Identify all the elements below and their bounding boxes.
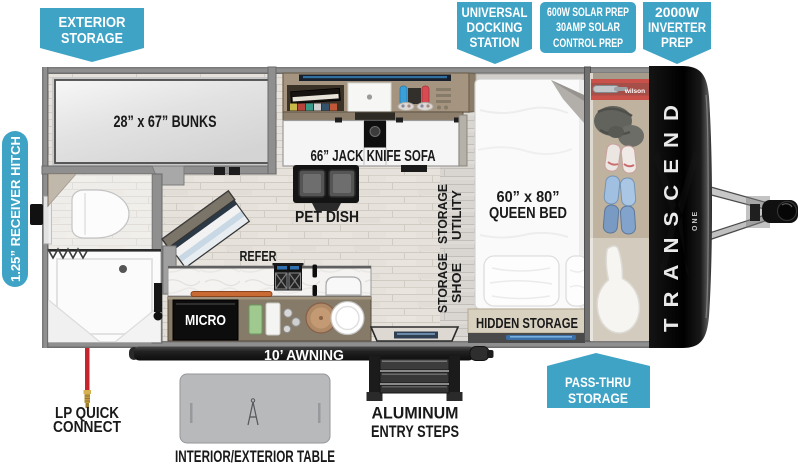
svg-text:PET DISH: PET DISH (295, 209, 359, 226)
svg-text:PASS-THRU: PASS-THRU (565, 374, 631, 390)
svg-text:28” x 67” BUNKS: 28” x 67” BUNKS (114, 112, 217, 131)
svg-text:MICRO: MICRO (185, 312, 226, 329)
svg-text:UNIVERSAL: UNIVERSAL (462, 5, 528, 20)
svg-text:STATION: STATION (470, 35, 520, 50)
svg-text:STORAGE: STORAGE (568, 390, 628, 406)
svg-text:PREP: PREP (661, 35, 693, 50)
svg-text:CONNECT: CONNECT (53, 419, 121, 436)
svg-text:ALUMINUM: ALUMINUM (372, 405, 459, 423)
svg-text:INTERIOR/EXTERIOR TABLE: INTERIOR/EXTERIOR TABLE (175, 448, 335, 465)
svg-text:60” x 80”: 60” x 80” (497, 189, 560, 206)
svg-text:TRANSCEND: TRANSCEND (661, 94, 683, 332)
svg-text:30AMP SOLAR: 30AMP SOLAR (556, 22, 621, 34)
svg-text:HIDDEN STORAGE: HIDDEN STORAGE (476, 316, 578, 332)
svg-text:UTILITY: UTILITY (449, 190, 464, 240)
svg-text:EXTERIOR: EXTERIOR (59, 15, 126, 31)
svg-text:10’ AWNING: 10’ AWNING (264, 347, 344, 364)
svg-text:QUEEN BED: QUEEN BED (489, 205, 567, 222)
svg-text:66” JACK KNIFE SOFA: 66” JACK KNIFE SOFA (311, 148, 436, 165)
svg-text:STORAGE: STORAGE (61, 31, 123, 47)
svg-text:STORAGE: STORAGE (435, 253, 450, 313)
svg-text:SHOE: SHOE (449, 263, 464, 303)
svg-text:CONTROL PREP: CONTROL PREP (553, 38, 623, 50)
svg-text:1.25” RECEIVER HITCH: 1.25” RECEIVER HITCH (8, 136, 23, 282)
svg-text:DOCKING: DOCKING (467, 20, 523, 35)
svg-text:ENTRY STEPS: ENTRY STEPS (371, 423, 459, 441)
svg-text:ONE: ONE (692, 210, 699, 231)
svg-text:INVERTER: INVERTER (648, 20, 706, 35)
svg-text:2000W: 2000W (655, 5, 699, 20)
svg-text:STORAGE: STORAGE (435, 184, 450, 244)
svg-text:600W SOLAR PREP: 600W SOLAR PREP (547, 7, 629, 19)
svg-text:REFER: REFER (240, 248, 277, 265)
